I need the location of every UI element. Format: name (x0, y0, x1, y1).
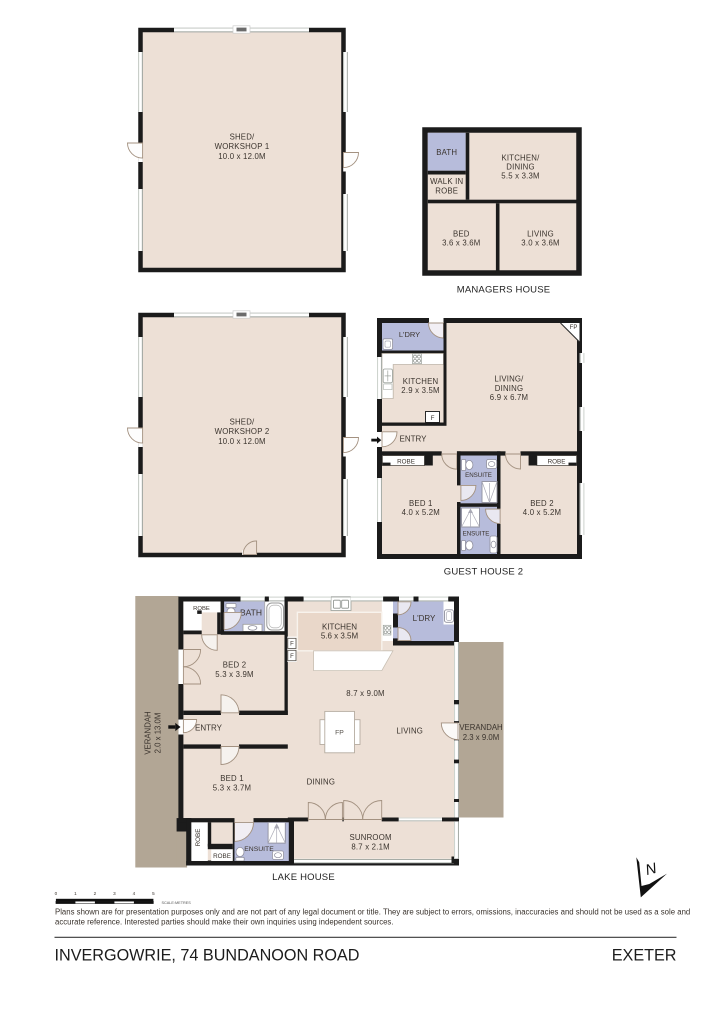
svg-text:3: 3 (113, 891, 116, 896)
svg-text:3.6 x 3.6M: 3.6 x 3.6M (442, 239, 480, 248)
svg-text:WORKSHOP 2: WORKSHOP 2 (215, 427, 270, 436)
svg-text:VERANDAH: VERANDAH (459, 723, 502, 732)
svg-text:6.9 x 6.7M: 6.9 x 6.7M (490, 393, 528, 402)
svg-text:ENSUITE: ENSUITE (465, 472, 492, 479)
svg-text:2.0 x 13.0M: 2.0 x 13.0M (153, 713, 162, 754)
svg-text:DINING: DINING (495, 384, 524, 393)
svg-text:LAKE HOUSE: LAKE HOUSE (272, 872, 335, 883)
svg-text:ENSUITE: ENSUITE (463, 531, 490, 538)
svg-text:L'DRY: L'DRY (399, 330, 420, 339)
svg-text:5.6 x 3.5M: 5.6 x 3.5M (321, 632, 359, 641)
svg-text:BATH: BATH (240, 608, 262, 618)
svg-text:KITCHEN: KITCHEN (403, 377, 439, 386)
svg-text:8.7 x 2.1M: 8.7 x 2.1M (351, 842, 389, 851)
svg-text:VERANDAH: VERANDAH (144, 711, 153, 754)
svg-text:SUNROOM: SUNROOM (350, 833, 392, 842)
svg-text:INVERGOWRIE, 74 BUNDANOON ROAD: INVERGOWRIE, 74 BUNDANOON ROAD (55, 947, 360, 965)
svg-text:SCALE:METRES: SCALE:METRES (162, 901, 192, 905)
svg-text:ROBE: ROBE (397, 458, 415, 465)
svg-text:5.3 x 3.7M: 5.3 x 3.7M (213, 784, 251, 793)
svg-text:EXETER: EXETER (612, 947, 677, 965)
svg-text:ROBE: ROBE (548, 458, 566, 465)
svg-text:2.9 x 3.5M: 2.9 x 3.5M (401, 386, 439, 395)
svg-text:10.0 x 12.0M: 10.0 x 12.0M (218, 437, 265, 446)
svg-text:FP: FP (570, 325, 578, 331)
svg-text:2: 2 (94, 891, 97, 896)
svg-text:F: F (431, 415, 435, 422)
svg-text:ROBE: ROBE (195, 829, 202, 847)
svg-text:DINING: DINING (506, 162, 535, 171)
svg-text:BED 2: BED 2 (530, 499, 554, 508)
svg-text:F: F (290, 654, 294, 660)
svg-text:SHED/: SHED/ (230, 133, 255, 142)
svg-text:BED: BED (453, 230, 470, 239)
svg-text:FP: FP (335, 730, 344, 737)
svg-text:ROBE: ROBE (213, 853, 231, 860)
svg-text:BED 2: BED 2 (223, 660, 247, 669)
svg-text:Plans shown are for presentati: Plans shown are for presentation purpose… (55, 908, 690, 917)
svg-text:DINING: DINING (307, 778, 336, 787)
svg-text:1: 1 (74, 891, 77, 896)
svg-text:3.0 x 3.6M: 3.0 x 3.6M (521, 239, 559, 248)
svg-text:ROBE: ROBE (435, 186, 458, 195)
svg-text:10.0 x 12.0M: 10.0 x 12.0M (218, 152, 265, 161)
svg-text:ENTRY: ENTRY (400, 435, 428, 444)
svg-text:accurate reference. Interested: accurate reference. Interested parties s… (55, 918, 394, 927)
svg-text:5.3 x 3.9M: 5.3 x 3.9M (215, 670, 253, 679)
svg-text:ENSUITE: ENSUITE (244, 846, 274, 853)
svg-text:4.0 x 5.2M: 4.0 x 5.2M (523, 508, 561, 517)
svg-text:L'DRY: L'DRY (413, 614, 436, 623)
svg-text:5: 5 (152, 891, 155, 896)
svg-text:KITCHEN/: KITCHEN/ (502, 154, 541, 163)
svg-text:GUEST HOUSE 2: GUEST HOUSE 2 (444, 567, 524, 578)
svg-text:0: 0 (55, 891, 58, 896)
svg-text:8.7 x 9.0M: 8.7 x 9.0M (346, 689, 384, 698)
svg-text:KITCHEN: KITCHEN (322, 622, 357, 631)
svg-text:LIVING: LIVING (527, 230, 554, 239)
svg-text:4: 4 (133, 891, 136, 896)
svg-text:WALK IN: WALK IN (430, 177, 463, 186)
svg-text:ENTRY: ENTRY (195, 723, 223, 732)
svg-text:LIVING: LIVING (396, 727, 423, 736)
svg-text:MANAGERS HOUSE: MANAGERS HOUSE (457, 285, 551, 296)
svg-text:2.3 x 9.0M: 2.3 x 9.0M (463, 733, 499, 742)
svg-text:BATH: BATH (436, 148, 457, 157)
svg-text:WORKSHOP 1: WORKSHOP 1 (215, 142, 270, 151)
svg-text:BED 1: BED 1 (220, 774, 244, 783)
svg-text:SHED/: SHED/ (230, 418, 255, 427)
svg-text:5.5 x 3.3M: 5.5 x 3.3M (501, 171, 539, 180)
svg-text:4.0 x 5.2M: 4.0 x 5.2M (402, 508, 440, 517)
svg-text:LIVING/: LIVING/ (494, 375, 524, 384)
svg-text:BED 1: BED 1 (409, 499, 433, 508)
svg-text:F: F (290, 642, 294, 648)
